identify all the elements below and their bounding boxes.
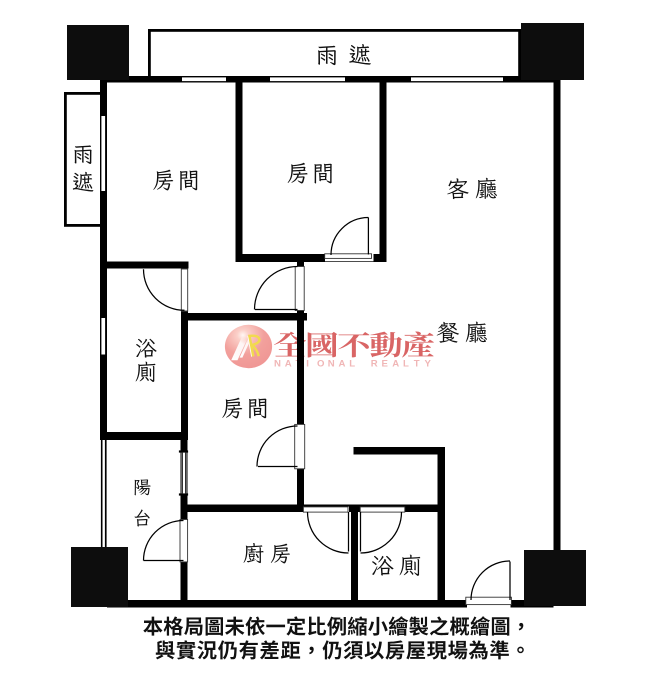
svg-text:E: E <box>382 359 389 370</box>
svg-text:I: I <box>306 359 309 370</box>
svg-text:O: O <box>317 359 325 370</box>
svg-text:N: N <box>274 359 281 370</box>
svg-text:L: L <box>403 359 409 370</box>
svg-text:A: A <box>392 359 399 370</box>
svg-text:N: N <box>328 359 335 370</box>
svg-text:T: T <box>414 359 420 370</box>
svg-text:A: A <box>285 359 292 370</box>
svg-text:R: R <box>371 359 378 370</box>
svg-text:L: L <box>349 359 355 370</box>
svg-text:A: A <box>339 359 346 370</box>
svg-text:Y: Y <box>425 359 432 370</box>
